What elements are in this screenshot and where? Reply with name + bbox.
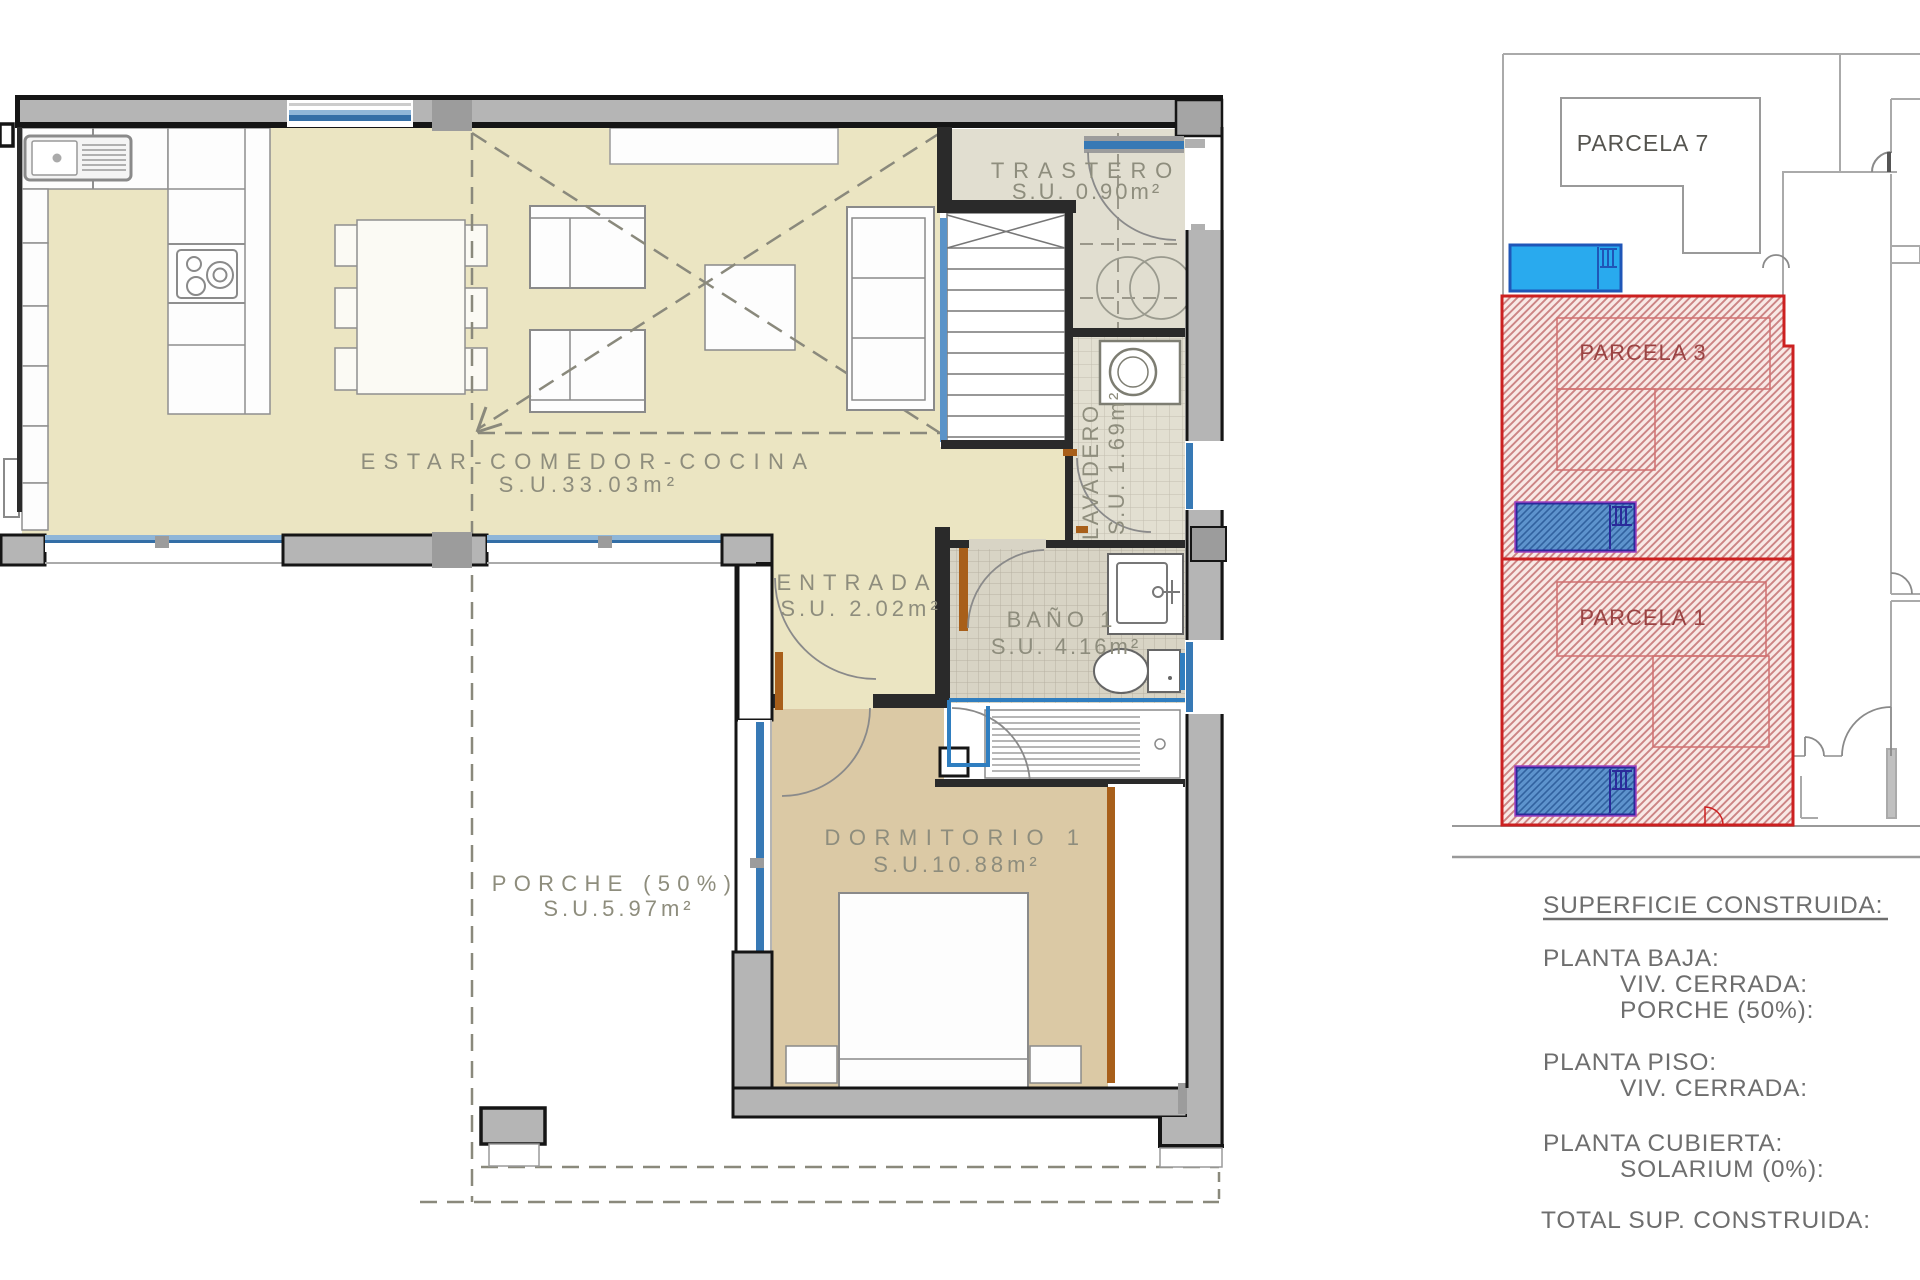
svg-text:PLANTA BAJA:: PLANTA BAJA: bbox=[1543, 945, 1720, 972]
svg-text:S.U.5.97m²: S.U.5.97m² bbox=[543, 896, 694, 921]
svg-text:S.U.33.03m²: S.U.33.03m² bbox=[499, 472, 680, 497]
svg-text:VIV. CERRADA:: VIV. CERRADA: bbox=[1620, 1075, 1808, 1102]
svg-text:SOLARIUM (0%):: SOLARIUM (0%): bbox=[1620, 1156, 1825, 1183]
svg-text:S.U. 4.16m²: S.U. 4.16m² bbox=[991, 634, 1141, 659]
svg-text:SUPERFICIE CONSTRUIDA:: SUPERFICIE CONSTRUIDA: bbox=[1543, 892, 1883, 919]
svg-text:PORCHE (50%):: PORCHE (50%): bbox=[1620, 997, 1814, 1024]
svg-text:S.U. 2.02m²: S.U. 2.02m² bbox=[780, 596, 941, 621]
svg-text:PARCELA 1: PARCELA 1 bbox=[1579, 605, 1706, 630]
svg-text:S.U. 1.69m²: S.U. 1.69m² bbox=[1104, 390, 1129, 535]
svg-text:LAVADERO: LAVADERO bbox=[1078, 403, 1103, 540]
svg-text:BAÑO 1: BAÑO 1 bbox=[1007, 607, 1118, 632]
svg-text:DORMITORIO 1: DORMITORIO 1 bbox=[825, 825, 1088, 850]
svg-text:PLANTA PISO:: PLANTA PISO: bbox=[1543, 1049, 1717, 1076]
svg-text:ESTAR-COMEDOR-COCINA: ESTAR-COMEDOR-COCINA bbox=[361, 449, 816, 474]
svg-text:PARCELA 7: PARCELA 7 bbox=[1577, 130, 1710, 156]
svg-text:S.U.10.88m²: S.U.10.88m² bbox=[873, 852, 1041, 877]
svg-text:S.U. 0.90m²: S.U. 0.90m² bbox=[1012, 179, 1162, 204]
svg-text:PARCELA 3: PARCELA 3 bbox=[1579, 340, 1706, 365]
svg-text:ENTRADA: ENTRADA bbox=[776, 570, 937, 595]
svg-text:PORCHE (50%): PORCHE (50%) bbox=[492, 871, 739, 896]
svg-text:TOTAL SUP. CONSTRUIDA:: TOTAL SUP. CONSTRUIDA: bbox=[1541, 1207, 1871, 1234]
svg-text:VIV. CERRADA:: VIV. CERRADA: bbox=[1620, 971, 1808, 998]
svg-text:PLANTA CUBIERTA:: PLANTA CUBIERTA: bbox=[1543, 1130, 1783, 1157]
